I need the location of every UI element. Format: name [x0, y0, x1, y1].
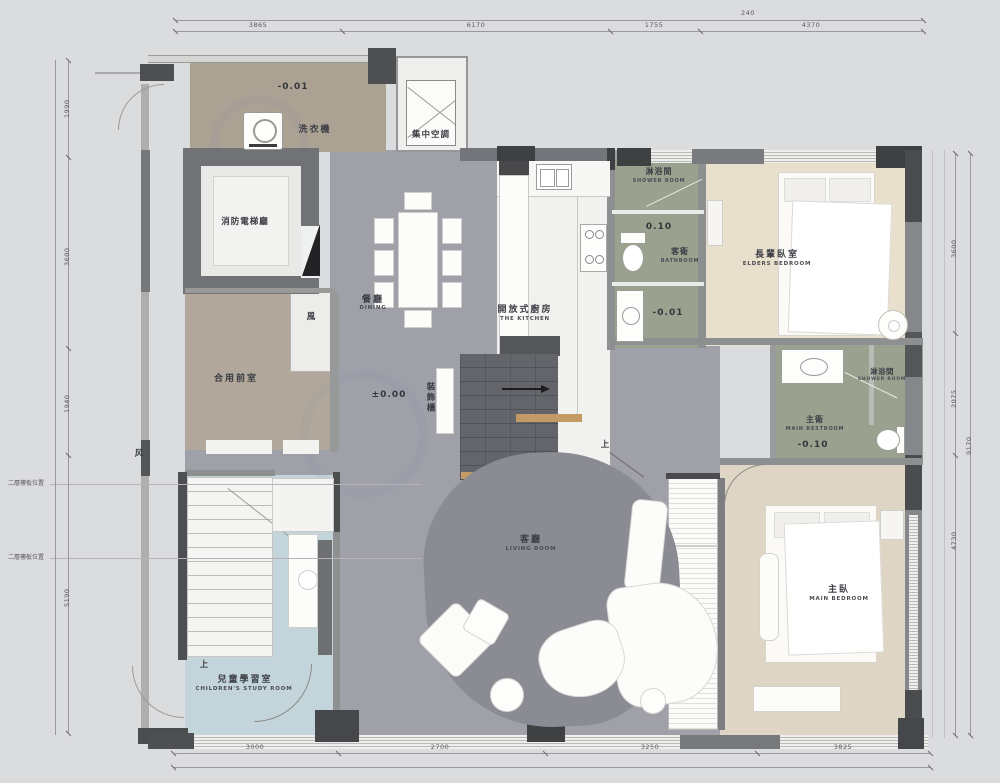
dim-label: 1940	[63, 394, 71, 413]
guest-bath-sublabel: BATHROOM	[661, 258, 700, 264]
elevation-label: ±0.00	[372, 390, 407, 400]
threshold	[283, 440, 319, 454]
children-stairs	[187, 477, 273, 657]
main-shower-label: 淋浴間	[870, 366, 894, 377]
dim-label: 3865	[249, 21, 268, 29]
stair-top-cabinet	[500, 336, 560, 356]
chaise-cushion	[759, 553, 779, 641]
dim-label: 2700	[431, 743, 450, 751]
dining-table	[398, 212, 438, 308]
slab-note: 二層樓板位置	[8, 478, 44, 487]
desk-chair	[298, 570, 318, 590]
dim-label: 6170	[467, 21, 486, 29]
wind-label: 风	[135, 447, 146, 459]
wall	[148, 733, 194, 749]
wall	[368, 48, 396, 84]
main-bath-label: 主衛	[806, 414, 824, 425]
bed-duvet	[788, 200, 893, 335]
dim-label: 4370	[802, 21, 821, 29]
elders-bedroom-label: 長輩臥室	[755, 247, 799, 260]
wall	[460, 148, 610, 161]
door-arc	[118, 84, 164, 130]
dim-label: 3600	[950, 239, 958, 258]
guest-bath-label: 客衛	[671, 246, 689, 257]
guest-shower-label: 淋浴間	[646, 166, 673, 177]
wall	[178, 472, 187, 660]
dim-label: 3000	[246, 743, 265, 751]
dim-label: 9170	[965, 436, 973, 455]
wall	[612, 210, 704, 214]
facade-line	[932, 150, 933, 738]
leader-line	[50, 558, 422, 559]
bench	[753, 686, 841, 712]
wall	[148, 55, 376, 63]
dim-label: 2075	[950, 389, 958, 408]
wind-label: 風	[307, 310, 318, 322]
pouf	[490, 678, 524, 712]
wall	[905, 150, 922, 222]
stairs-arrow-icon	[502, 388, 542, 390]
decor-cabinet-label: 裝飾櫃	[424, 382, 436, 414]
dim-label: 1755	[645, 21, 664, 29]
elevation-label: 0.10	[646, 222, 672, 232]
cabinet	[272, 478, 334, 532]
wall	[770, 345, 776, 463]
wall	[898, 718, 924, 749]
dining-label: 餐廳	[362, 292, 384, 305]
wall	[95, 72, 142, 74]
main-bedroom-sublabel: MAIN BEDROOM	[809, 596, 868, 602]
dimension-line	[173, 753, 930, 754]
elders-bedroom-sublabel: ELDERS BEDROOM	[743, 261, 811, 267]
dim-label: 4730	[950, 531, 958, 550]
wall	[315, 710, 359, 742]
dim-label: 3825	[834, 743, 853, 751]
floor-plan: -0.01 洗衣機 集中空調 消防電梯廳 合用前室 風 风 餐廳 DINING …	[0, 0, 1000, 783]
ac-label: 集中空調	[412, 128, 450, 140]
round-table-icon	[878, 310, 908, 340]
kitchen-island-cap	[499, 161, 529, 175]
wall	[333, 472, 340, 532]
wall	[718, 478, 725, 730]
wall	[610, 338, 923, 345]
cooktop-icon	[580, 224, 607, 272]
vestibule-label: 合用前室	[214, 371, 258, 384]
children-room-label: 兒童學習室	[217, 672, 272, 685]
dim-label: 3600	[63, 247, 71, 266]
nightstand	[880, 510, 904, 540]
main-bedroom-label: 主臥	[828, 582, 850, 595]
washer-icon	[243, 112, 283, 150]
toilet-icon	[620, 232, 646, 244]
vanity-icon	[781, 349, 844, 384]
dim-label: 3250	[641, 743, 660, 751]
threshold	[206, 440, 272, 454]
dining-sublabel: DINING	[359, 305, 386, 311]
dimension-line	[175, 31, 923, 32]
nightstand	[707, 200, 723, 246]
dining-chair	[442, 250, 462, 276]
elevation-label: -0.01	[653, 308, 684, 318]
facade-line	[944, 150, 945, 738]
pouf	[640, 688, 666, 714]
wall	[185, 470, 275, 476]
door-arc	[132, 666, 184, 718]
window-band	[909, 515, 918, 690]
stairs-arrow-icon	[541, 385, 550, 393]
dim-label: 5190	[63, 588, 71, 607]
elevator-hall-label: 消防電梯廳	[221, 215, 269, 227]
wall	[185, 288, 335, 293]
decor-cabinet	[436, 368, 454, 434]
window-band	[650, 150, 906, 163]
living-sublabel: LIVING ROOM	[506, 546, 557, 552]
toilet-icon	[622, 244, 644, 272]
stairs-wood-strip	[516, 414, 582, 422]
wall	[330, 292, 339, 452]
children-room-sublabel: CHILDREN'S STUDY ROOM	[195, 686, 292, 692]
vanity-icon	[616, 290, 644, 342]
wall	[680, 735, 780, 749]
wall	[720, 458, 923, 465]
dim-label: 1990	[63, 99, 71, 118]
wall	[140, 64, 174, 81]
stairs-up-label: 上	[601, 438, 612, 450]
dimension-line	[173, 767, 930, 768]
sink-icon	[536, 164, 572, 190]
elevation-label: -0.10	[798, 440, 829, 450]
guest-shower-sublabel: SHOWER ROOM	[633, 178, 686, 184]
dimension-line	[55, 60, 56, 735]
dining-chair	[404, 192, 432, 210]
kitchen-sublabel: THE KITCHEN	[500, 316, 550, 322]
living-label: 客廳	[520, 532, 542, 545]
dining-chair	[374, 250, 394, 276]
counter-edge	[577, 197, 578, 422]
wall	[141, 150, 150, 292]
children-up-label: 上	[200, 658, 211, 670]
dining-chair	[442, 218, 462, 244]
wall	[666, 473, 720, 479]
dining-chair	[442, 282, 462, 308]
main-bath-sublabel: MAIN RESTROOM	[786, 426, 845, 432]
elevation-label: -0.01	[278, 82, 309, 92]
kitchen-label: 開放式廚房	[497, 302, 552, 315]
wall	[692, 149, 764, 164]
dim-label: 240	[741, 9, 755, 17]
wall	[612, 282, 704, 286]
main-shower-sublabel: SHOWER ROOM	[858, 377, 906, 382]
slab-note: 二層樓板位置	[8, 552, 44, 561]
washer-label: 洗衣機	[298, 122, 331, 135]
toilet-icon	[876, 429, 900, 451]
dining-chair	[374, 218, 394, 244]
door-leaf-icon	[302, 224, 320, 276]
wall	[617, 148, 651, 166]
leader-line	[50, 484, 422, 485]
dining-chair	[404, 310, 432, 328]
